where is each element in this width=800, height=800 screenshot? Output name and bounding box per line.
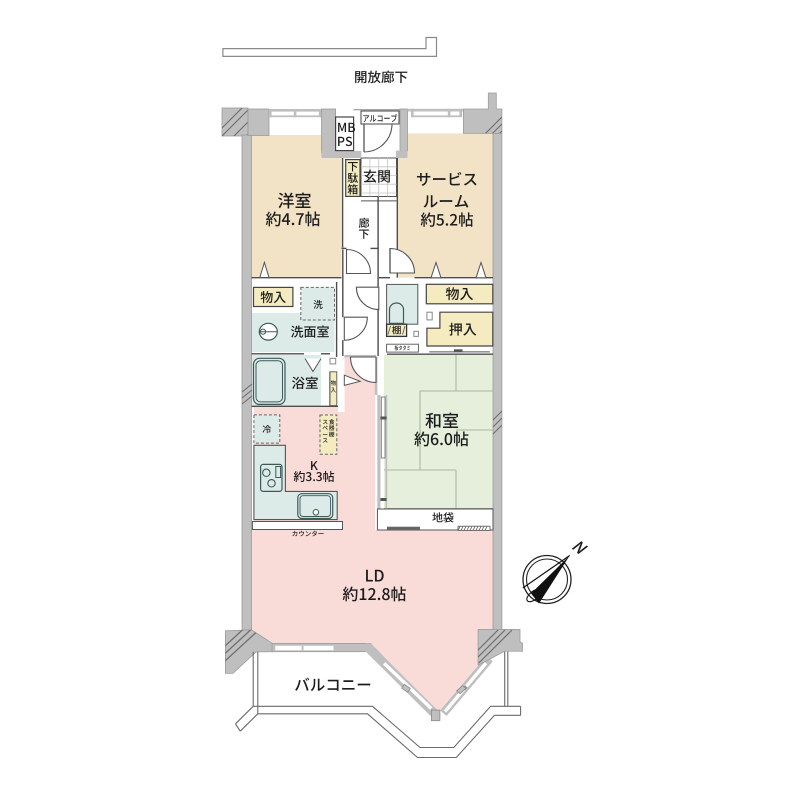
svg-text:浴室: 浴室 bbox=[292, 372, 319, 392]
svg-text:アルコーブ: アルコーブ bbox=[363, 112, 398, 124]
svg-text:サービス: サービス bbox=[416, 168, 478, 190]
svg-text:洗面室: 洗面室 bbox=[290, 322, 329, 341]
svg-text:約6.0帖: 約6.0帖 bbox=[414, 426, 469, 450]
svg-text:棚: 棚 bbox=[392, 323, 402, 337]
svg-text:物入: 物入 bbox=[446, 284, 474, 304]
svg-text:約3.3帖: 約3.3帖 bbox=[293, 468, 334, 485]
svg-text:N: N bbox=[567, 533, 593, 561]
svg-text:約12.8帖: 約12.8帖 bbox=[342, 581, 406, 605]
svg-text:箱: 箱 bbox=[347, 182, 358, 198]
svg-text:板タタミ: 板タタミ bbox=[395, 344, 411, 352]
svg-text:物入: 物入 bbox=[260, 287, 286, 306]
svg-text:開放廊下: 開放廊下 bbox=[354, 66, 408, 86]
svg-text:約4.7帖: 約4.7帖 bbox=[265, 206, 320, 230]
svg-text:バルコニー: バルコニー bbox=[294, 674, 372, 696]
svg-text:冷: 冷 bbox=[262, 423, 271, 436]
svg-text:ス: ス bbox=[322, 436, 328, 445]
svg-text:地袋: 地袋 bbox=[432, 510, 454, 526]
svg-text:約5.2帖: 約5.2帖 bbox=[420, 209, 473, 231]
svg-text:カウンター: カウンター bbox=[292, 528, 325, 538]
svg-text:洗: 洗 bbox=[313, 297, 323, 311]
svg-text:PS: PS bbox=[337, 131, 353, 150]
svg-text:玄関: 玄関 bbox=[363, 167, 391, 187]
svg-text:入: 入 bbox=[331, 386, 337, 394]
svg-text:棚: 棚 bbox=[329, 429, 335, 438]
svg-text:下: 下 bbox=[359, 226, 370, 242]
svg-text:押入: 押入 bbox=[449, 320, 477, 340]
